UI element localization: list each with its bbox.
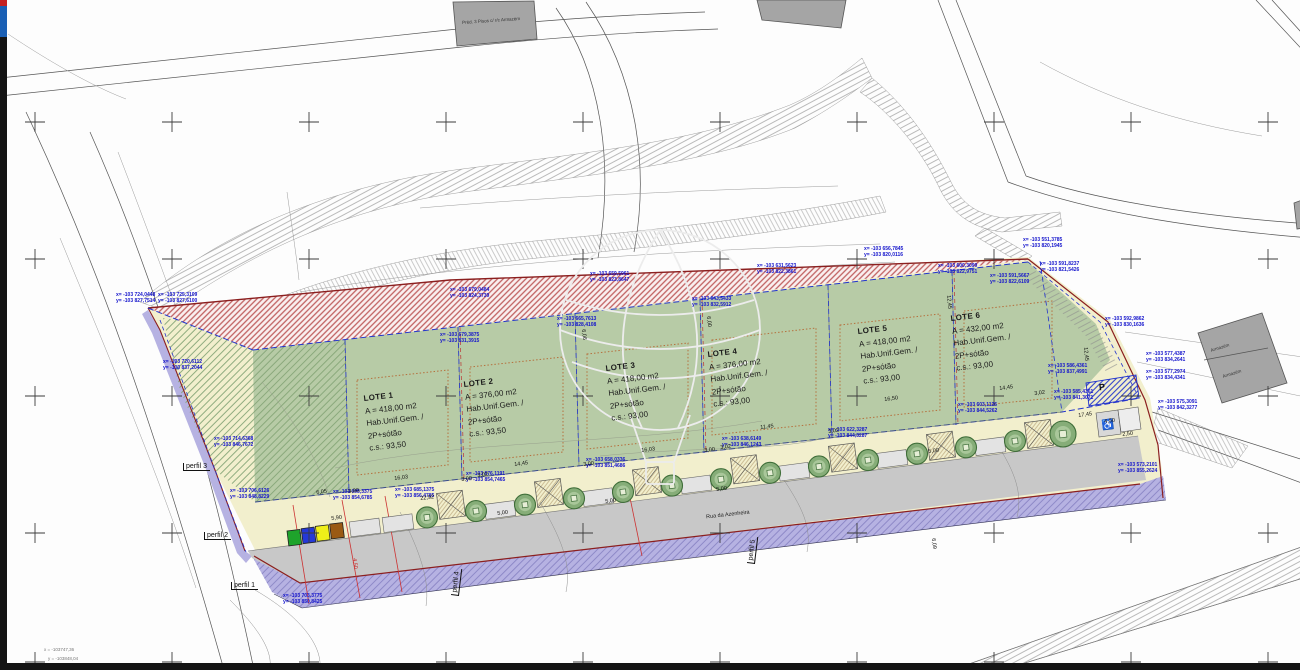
legend-swatch (287, 529, 302, 545)
tree-pit (767, 470, 773, 476)
tree-pit (1059, 430, 1067, 438)
accessible-bay-2 (1118, 407, 1141, 432)
accessible-bay-1 (1096, 410, 1121, 437)
tree-pit (571, 495, 577, 501)
tree-pit (620, 489, 626, 495)
tree-pit (865, 457, 871, 463)
tree-pit (718, 476, 724, 482)
window-edge-accent-blue (0, 5, 7, 37)
window-edge-left (0, 36, 7, 670)
site-plan-viewport: Rua da Azenheira P ♿ LOTE 1A = 418,00 m2… (0, 0, 1300, 670)
building-top (453, 1, 537, 46)
window-edge-bottom (0, 663, 1300, 670)
tree-pit (424, 514, 430, 520)
legend-swatch (330, 523, 345, 539)
site-plan-drawing (0, 0, 1300, 670)
window-edge-accent-red (0, 0, 7, 6)
tree-pit (522, 502, 528, 508)
tree-pit (963, 444, 969, 450)
tree-pit (1012, 438, 1018, 444)
tree-pit (914, 451, 920, 457)
tree-pit (473, 508, 479, 514)
tree-pit (816, 463, 822, 469)
